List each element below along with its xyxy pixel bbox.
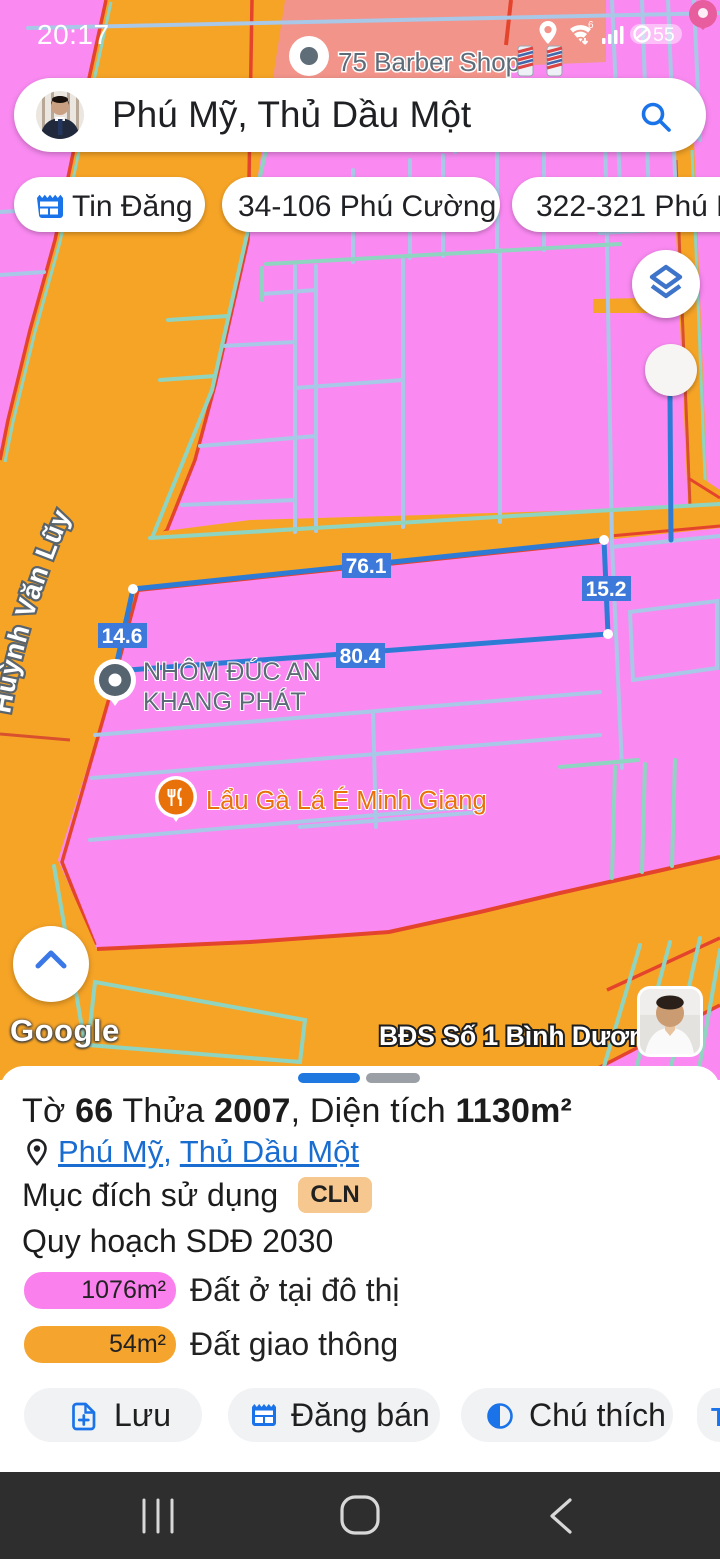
svg-text:Lẩu Gà Lá É Minh Giang: Lẩu Gà Lá É Minh Giang — [206, 786, 487, 815]
svg-text:80.4: 80.4 — [340, 645, 381, 668]
svg-text:KHANG PHÁT: KHANG PHÁT — [143, 687, 306, 716]
svg-text:15.2: 15.2 — [586, 578, 627, 601]
svg-text:BĐS Số 1 Bình Dương: BĐS Số 1 Bình Dương — [379, 1021, 650, 1051]
svg-text:NHÔM ĐÚC AN: NHÔM ĐÚC AN — [143, 657, 321, 686]
svg-text:14.6: 14.6 — [102, 625, 143, 648]
svg-text:55: 55 — [653, 24, 675, 46]
svg-text:75 Barber Shop: 75 Barber Shop — [338, 47, 520, 77]
svg-text:6: 6 — [588, 20, 594, 31]
svg-text:76.1: 76.1 — [346, 555, 387, 578]
